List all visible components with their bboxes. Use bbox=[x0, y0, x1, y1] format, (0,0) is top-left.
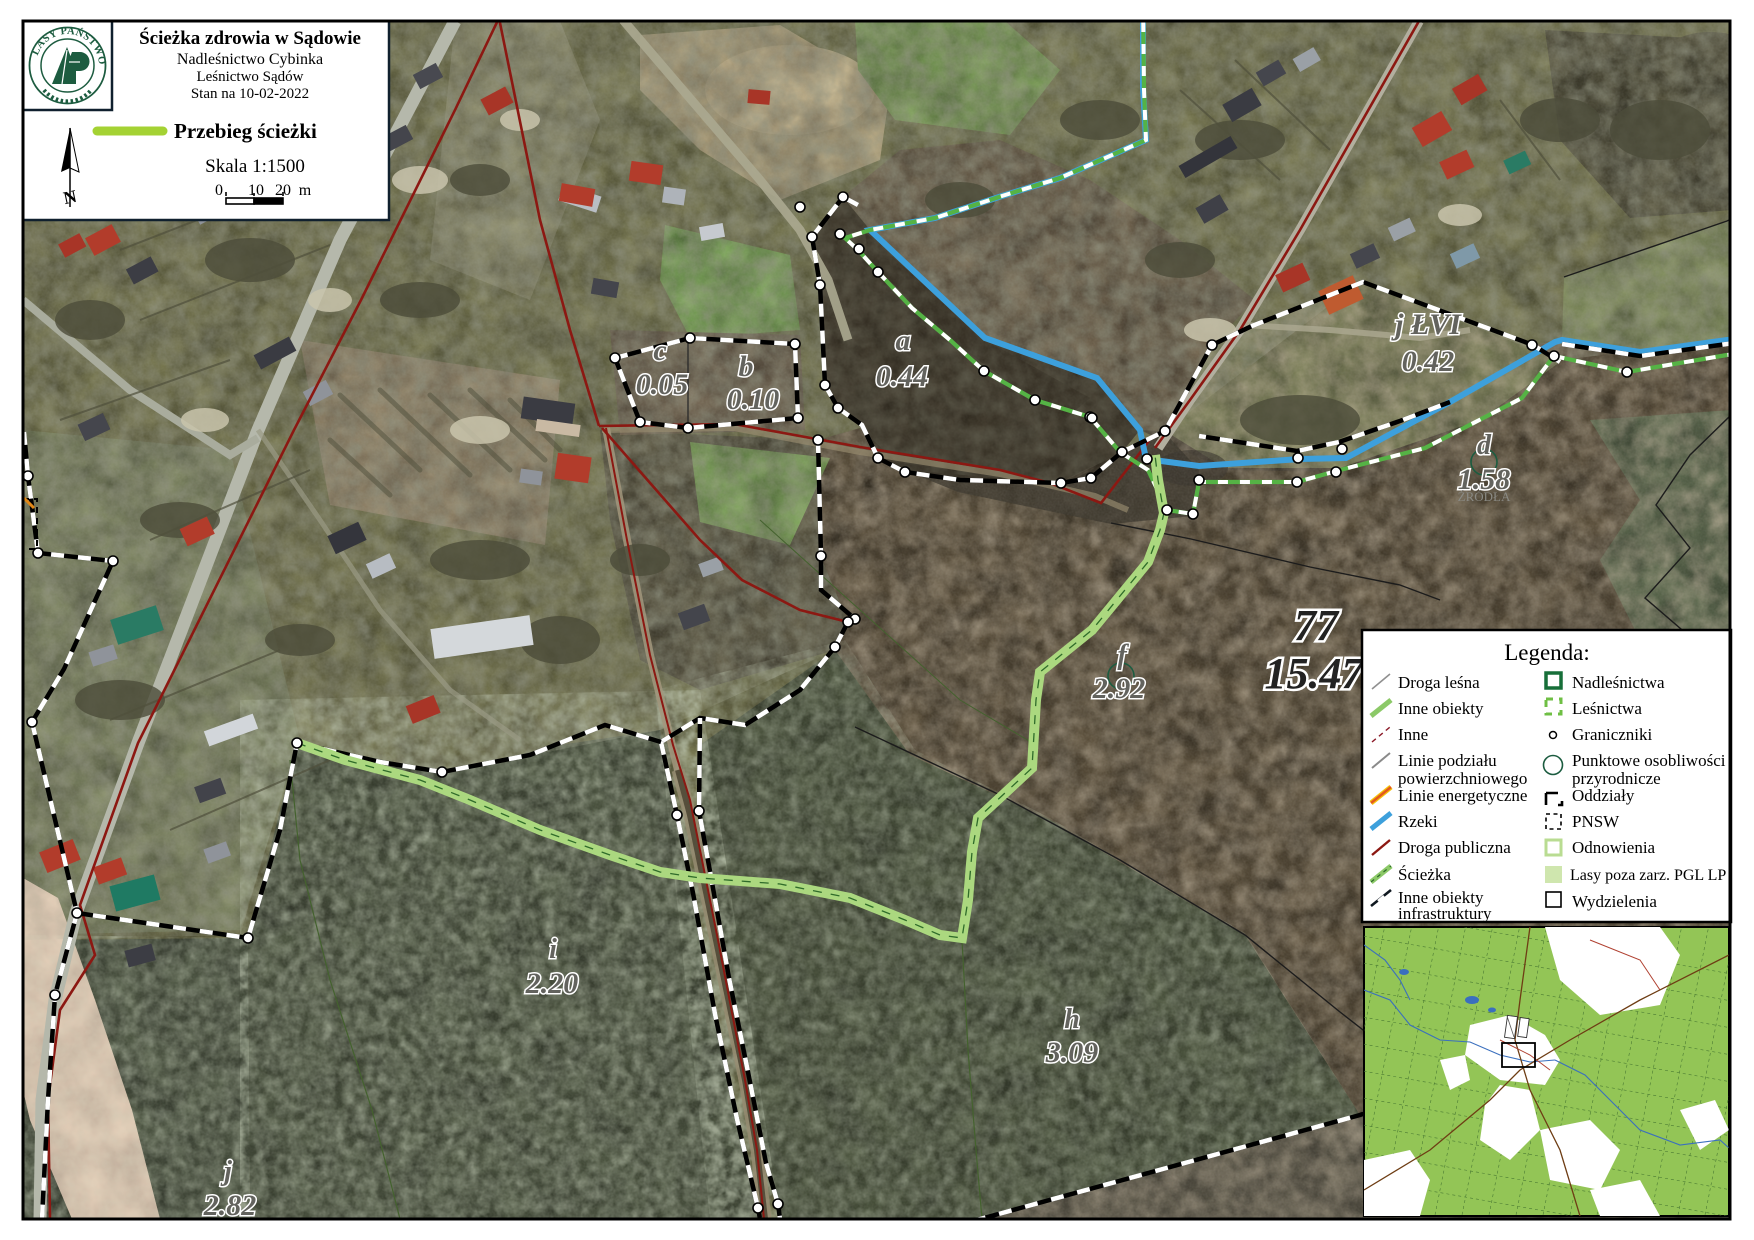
svg-text:77: 77 bbox=[1294, 601, 1340, 650]
svg-text:i: i bbox=[549, 934, 557, 965]
svg-text:2.82: 2.82 bbox=[203, 1189, 257, 1222]
svg-text:0: 0 bbox=[215, 182, 223, 199]
svg-text:Leśnictwo Sądów: Leśnictwo Sądów bbox=[196, 69, 303, 85]
svg-text:0.42: 0.42 bbox=[1402, 345, 1455, 378]
svg-text:Linie podziału: Linie podziału bbox=[1398, 751, 1497, 770]
svg-text:Punktowe osobliwości: Punktowe osobliwości bbox=[1572, 751, 1726, 770]
svg-text:Stan na 10-02-2022: Stan na 10-02-2022 bbox=[191, 86, 309, 102]
svg-text:0.05: 0.05 bbox=[636, 368, 689, 401]
svg-text:15.47: 15.47 bbox=[1265, 649, 1366, 698]
svg-text:j ŁVI: j ŁVI bbox=[1391, 308, 1462, 341]
svg-text:Ścieżka: Ścieżka bbox=[1398, 865, 1451, 884]
svg-text:ŹRÓDŁA: ŹRÓDŁA bbox=[1458, 489, 1511, 504]
svg-text:Legenda:: Legenda: bbox=[1504, 640, 1590, 665]
svg-text:Ścieżka zdrowia w Sądowie: Ścieżka zdrowia w Sądowie bbox=[139, 27, 361, 49]
svg-text:a: a bbox=[896, 324, 911, 357]
svg-text:Inne: Inne bbox=[1398, 725, 1428, 744]
svg-text:Nadleśnictwo Cybinka: Nadleśnictwo Cybinka bbox=[177, 51, 323, 68]
svg-text:Droga publiczna: Droga publiczna bbox=[1398, 838, 1511, 857]
svg-text:m: m bbox=[299, 182, 312, 199]
svg-text:Nadleśnictwa: Nadleśnictwa bbox=[1572, 673, 1665, 692]
svg-text:Odnowienia: Odnowienia bbox=[1572, 838, 1656, 857]
svg-text:Skala 1:1500: Skala 1:1500 bbox=[205, 156, 305, 177]
svg-text:Linie energetyczne: Linie energetyczne bbox=[1398, 786, 1527, 805]
svg-text:c: c bbox=[653, 334, 666, 367]
svg-text:Rzeki: Rzeki bbox=[1398, 812, 1438, 831]
svg-text:2.20: 2.20 bbox=[525, 967, 579, 1000]
svg-text:Droga leśna: Droga leśna bbox=[1398, 673, 1480, 692]
svg-text:20: 20 bbox=[275, 182, 291, 199]
svg-text:Wydzielenia: Wydzielenia bbox=[1572, 892, 1657, 911]
svg-text:Inne obiekty: Inne obiekty bbox=[1398, 699, 1484, 718]
svg-text:Lasy poza zarz. PGL LP: Lasy poza zarz. PGL LP bbox=[1570, 867, 1726, 884]
svg-text:h: h bbox=[1064, 1004, 1080, 1035]
svg-text:2.92: 2.92 bbox=[1092, 672, 1146, 705]
svg-text:PNSW: PNSW bbox=[1572, 812, 1620, 831]
svg-text:infrastruktury: infrastruktury bbox=[1398, 904, 1492, 923]
svg-text:0.10: 0.10 bbox=[727, 383, 780, 416]
svg-text:d: d bbox=[1477, 430, 1492, 461]
svg-text:Leśnictwa: Leśnictwa bbox=[1572, 699, 1642, 718]
svg-text:3.09: 3.09 bbox=[1045, 1036, 1099, 1069]
svg-text:0.44: 0.44 bbox=[876, 360, 929, 393]
svg-text:b: b bbox=[739, 350, 754, 383]
svg-text:Oddziały: Oddziały bbox=[1572, 786, 1635, 805]
svg-text:Przebieg ścieżki: Przebieg ścieżki bbox=[174, 119, 317, 143]
svg-text:Graniczniki: Graniczniki bbox=[1572, 725, 1653, 744]
svg-text:10: 10 bbox=[248, 182, 264, 199]
